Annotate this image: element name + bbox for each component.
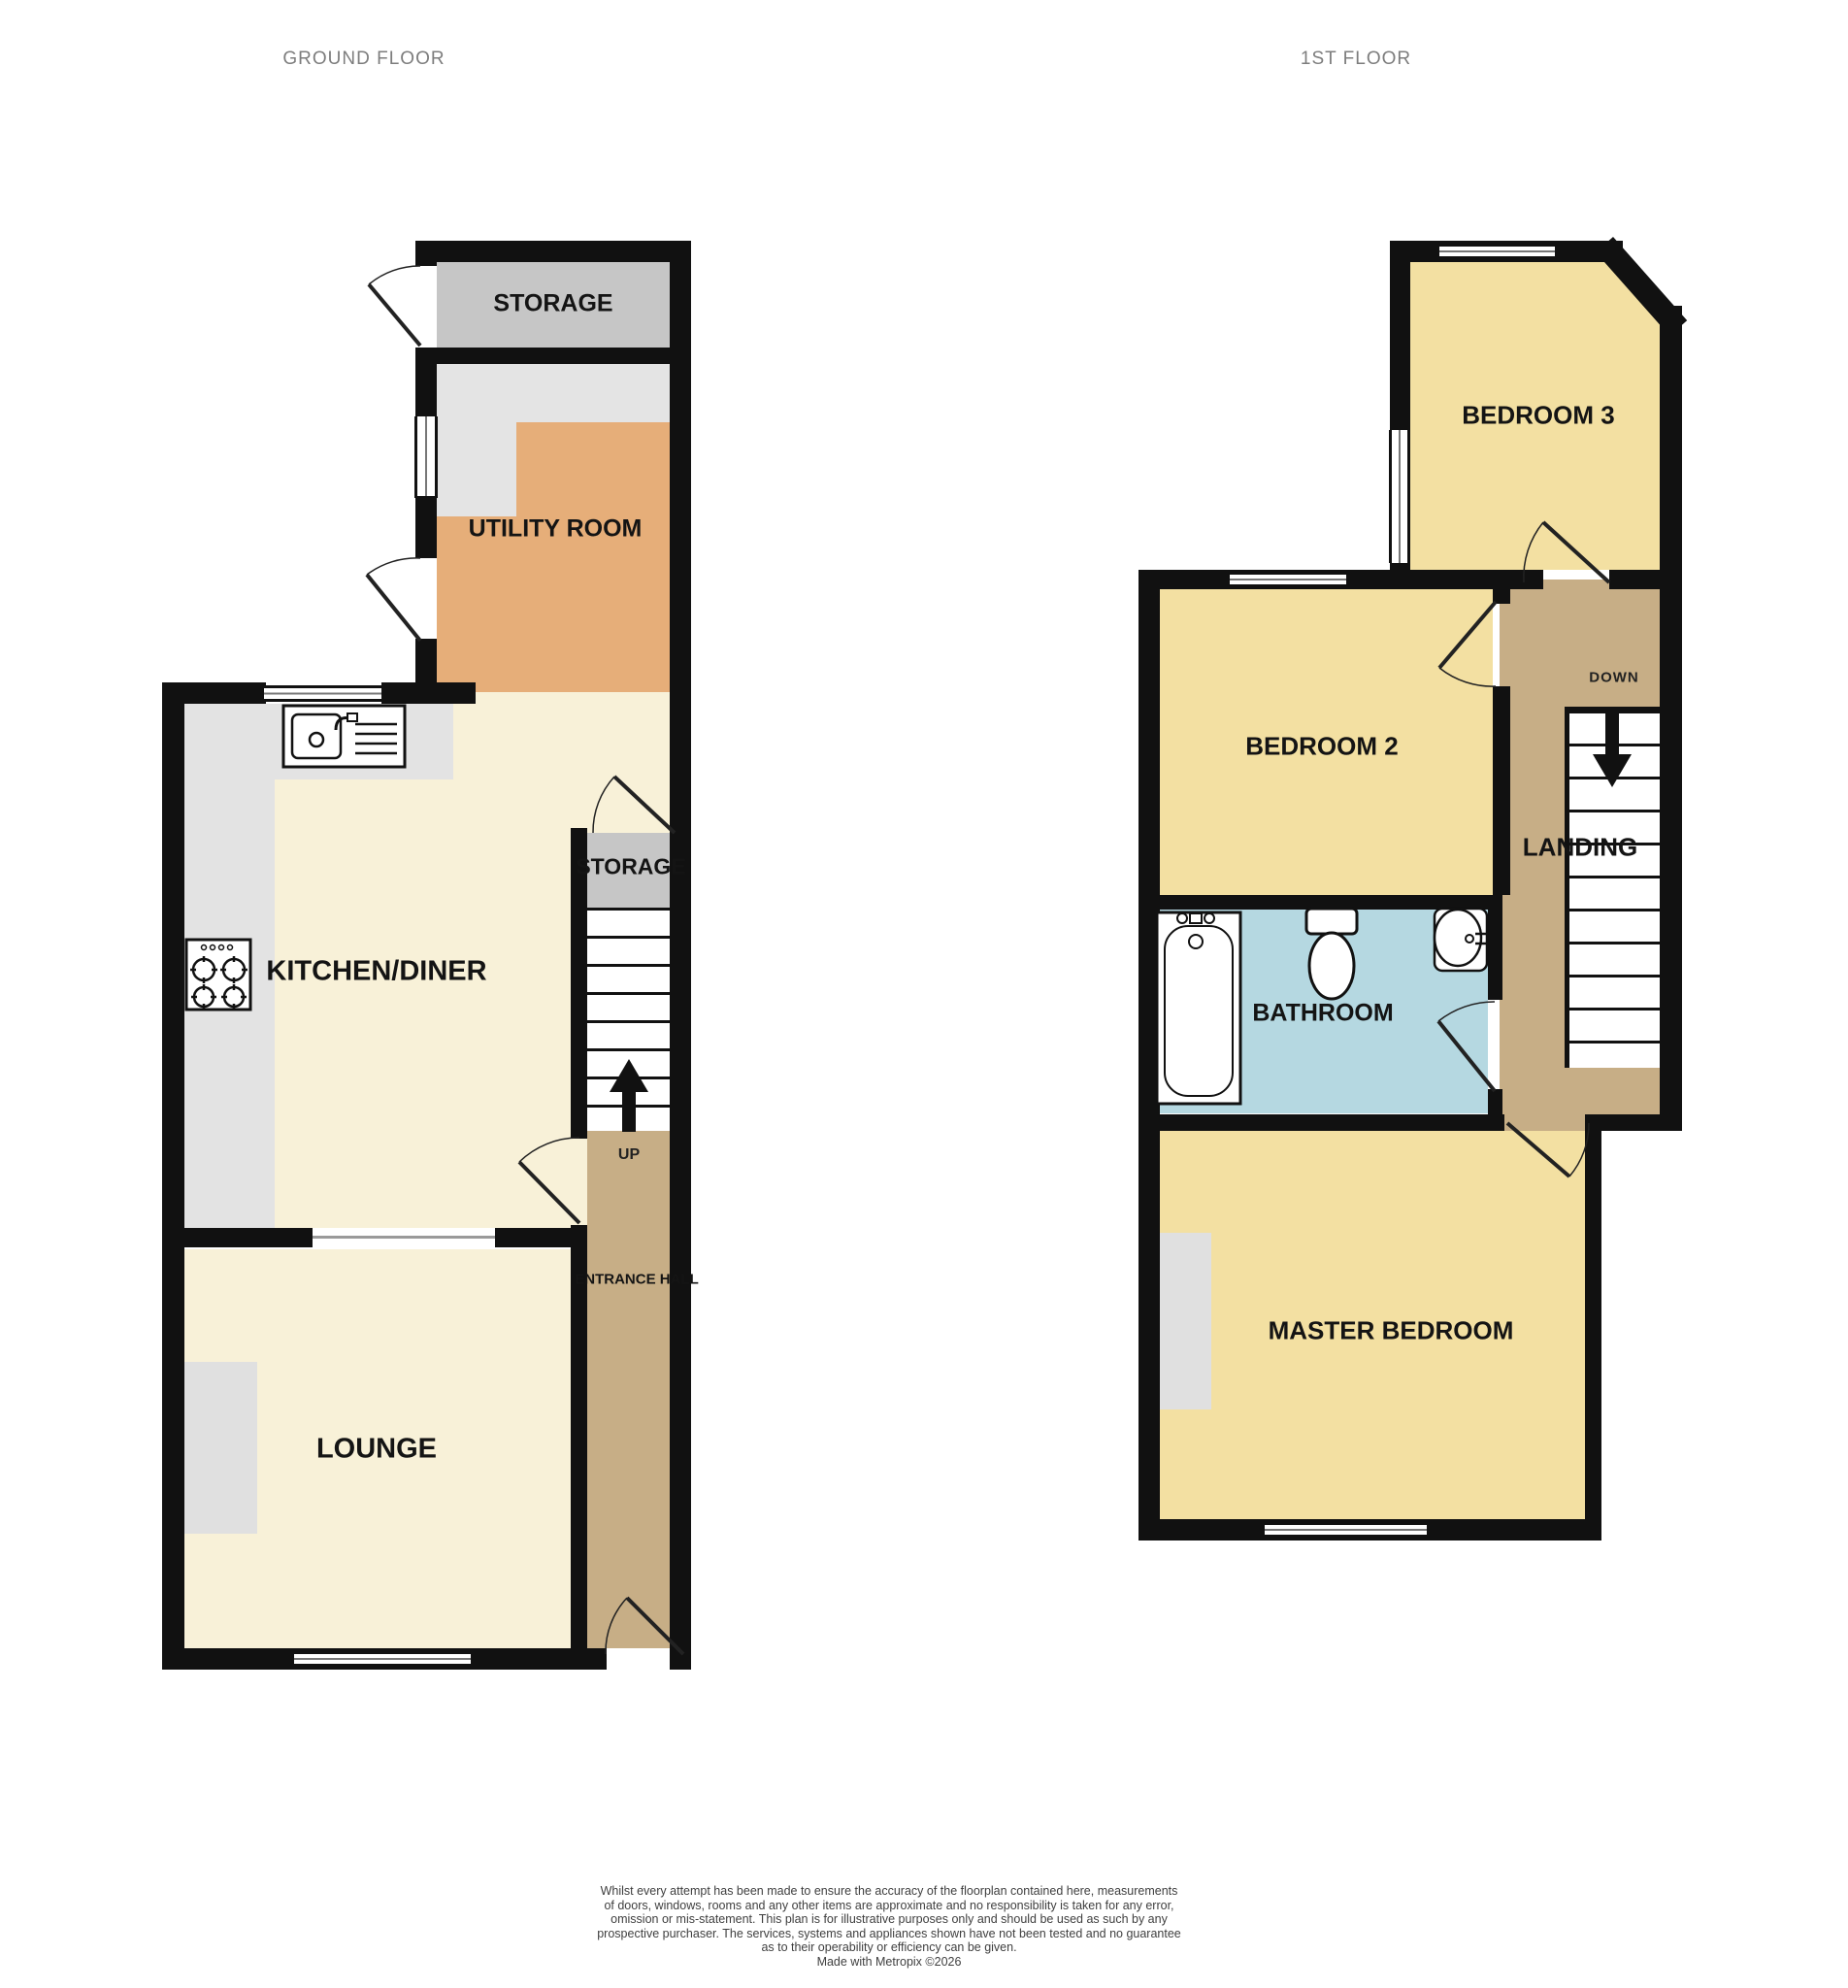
stairs-up-label: UP [618, 1146, 640, 1164]
floorplan-canvas: GROUND FLOOR 1ST FLOOR [0, 0, 1848, 1988]
window [414, 416, 438, 498]
room-label-landing: LANDING [1523, 833, 1637, 863]
wall [415, 241, 691, 262]
wall [1585, 1114, 1601, 1541]
wall [1138, 570, 1160, 1541]
wall [415, 241, 437, 266]
wall [162, 682, 184, 1670]
room-utility-floor [516, 422, 670, 519]
room-label-utility: UTILITY ROOM [469, 515, 643, 544]
room-label-storage: STORAGE [493, 290, 612, 318]
room-label-understairs-storage: STORAGE [576, 854, 685, 880]
disclaimer-line: Whilst every attempt has been made to en… [540, 1884, 1238, 1899]
window [264, 685, 382, 702]
wall [1138, 895, 1502, 910]
room-label-bedroom-3: BEDROOM 3 [1462, 401, 1614, 431]
room-label-master-bedroom: MASTER BEDROOM [1269, 1316, 1514, 1346]
stairs-down-label: DOWN [1589, 670, 1639, 686]
disclaimer-line: prospective purchaser. The services, sys… [540, 1927, 1238, 1941]
down-arrow-icon [1593, 754, 1632, 787]
wall [1493, 589, 1510, 604]
room-entrance-hall [587, 1131, 670, 1648]
window [1265, 1522, 1427, 1538]
wall [1493, 686, 1510, 895]
wall [495, 1228, 587, 1247]
wall [381, 682, 476, 704]
room-label-kitchen-diner: KITCHEN/DINER [266, 956, 486, 988]
wall [415, 348, 691, 364]
wall [1660, 306, 1682, 1131]
room-kitchen-diner [476, 692, 670, 833]
lounge-alcove [184, 1362, 257, 1534]
window [1230, 572, 1346, 587]
up-arrow-icon [622, 1092, 636, 1132]
master-bedroom-alcove [1160, 1233, 1211, 1409]
room-label-bedroom-2: BEDROOM 2 [1245, 732, 1398, 762]
down-arrow-icon [1605, 712, 1619, 754]
window [1439, 244, 1555, 259]
room-label-entrance-hall: ENTRANCE HALL [575, 1272, 699, 1288]
ground-floor-title: GROUND FLOOR [282, 49, 445, 70]
kitchen-counter [184, 704, 275, 1228]
wall [415, 364, 437, 418]
wall [1138, 1114, 1504, 1131]
up-arrow-icon [610, 1059, 648, 1092]
wall [670, 241, 691, 1670]
room-label-bathroom: BATHROOM [1252, 1000, 1393, 1028]
window [294, 1651, 471, 1667]
disclaimer-credit: Made with Metropix ©2026 [540, 1955, 1238, 1970]
window [1389, 430, 1410, 563]
disclaimer-line: of doors, windows, rooms and any other i… [540, 1899, 1238, 1913]
disclaimer-text: Whilst every attempt has been made to en… [540, 1884, 1238, 1970]
wall-opening [313, 1236, 495, 1239]
wall [162, 1228, 313, 1247]
wall [1390, 241, 1410, 430]
wall [415, 496, 437, 558]
wall [1589, 1114, 1682, 1131]
room-label-lounge: LOUNGE [316, 1434, 437, 1466]
wall [571, 1225, 587, 1670]
first-floor-title: 1ST FLOOR [1301, 49, 1411, 70]
disclaimer-line: as to their operability or efficiency ca… [540, 1940, 1238, 1955]
disclaimer-line: omission or mis-statement. This plan is … [540, 1912, 1238, 1927]
wall [1488, 895, 1502, 1000]
